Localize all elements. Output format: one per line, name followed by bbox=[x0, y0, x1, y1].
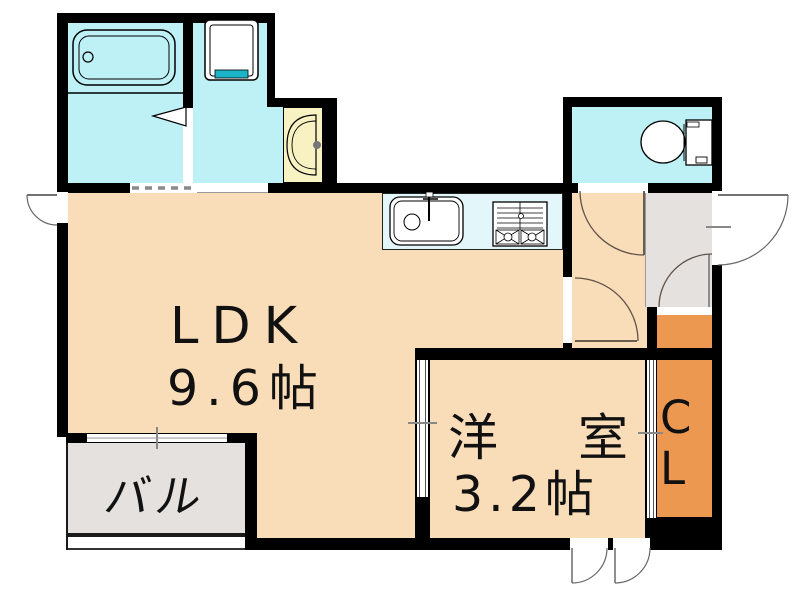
hall-door-icon bbox=[575, 278, 638, 341]
kitchen-sink-icon bbox=[390, 192, 463, 245]
gas-stove-icon bbox=[493, 202, 547, 246]
bathtub-icon bbox=[68, 30, 183, 93]
ldk-size-label: 9.6帖 bbox=[167, 349, 326, 420]
floor-plan: LDK 9.6帖 洋室 3.2帖 CL バル bbox=[0, 0, 800, 594]
terrace-door2-icon bbox=[615, 548, 650, 583]
bathroom-door-icon bbox=[153, 107, 193, 183]
side-door-icon bbox=[27, 195, 57, 225]
toilet-icon bbox=[641, 120, 712, 165]
balcony-label: バル bbox=[100, 460, 213, 525]
closet-label: CL bbox=[660, 392, 708, 494]
washing-machine-pan-icon bbox=[205, 20, 258, 80]
entry-door-icon bbox=[706, 195, 788, 265]
entry-closet-door-icon bbox=[659, 254, 712, 307]
toilet-door-icon bbox=[580, 191, 644, 255]
terrace-door1-icon bbox=[572, 548, 607, 583]
ldk-label: LDK bbox=[170, 297, 310, 356]
washbasin-icon bbox=[287, 115, 321, 175]
western-room-size-label: 3.2帖 bbox=[452, 455, 599, 526]
